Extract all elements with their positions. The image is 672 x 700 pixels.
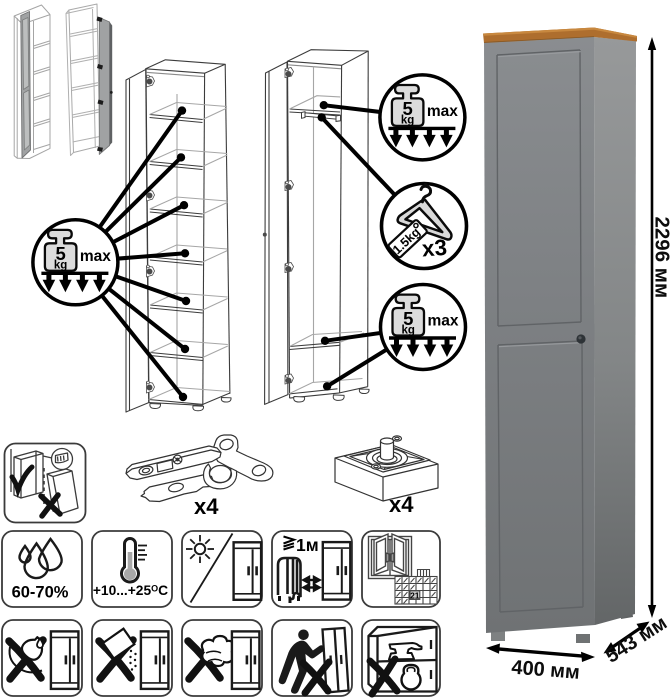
svg-text:2296 мм: 2296 мм [651, 217, 672, 299]
svg-text:60-70%: 60-70% [12, 584, 69, 602]
svg-text:x3: x3 [421, 235, 448, 262]
svg-text:1м: 1м [296, 535, 319, 555]
svg-text:x4: x4 [194, 494, 219, 519]
svg-text:x4: x4 [389, 492, 414, 517]
svg-text:21: 21 [410, 591, 420, 601]
